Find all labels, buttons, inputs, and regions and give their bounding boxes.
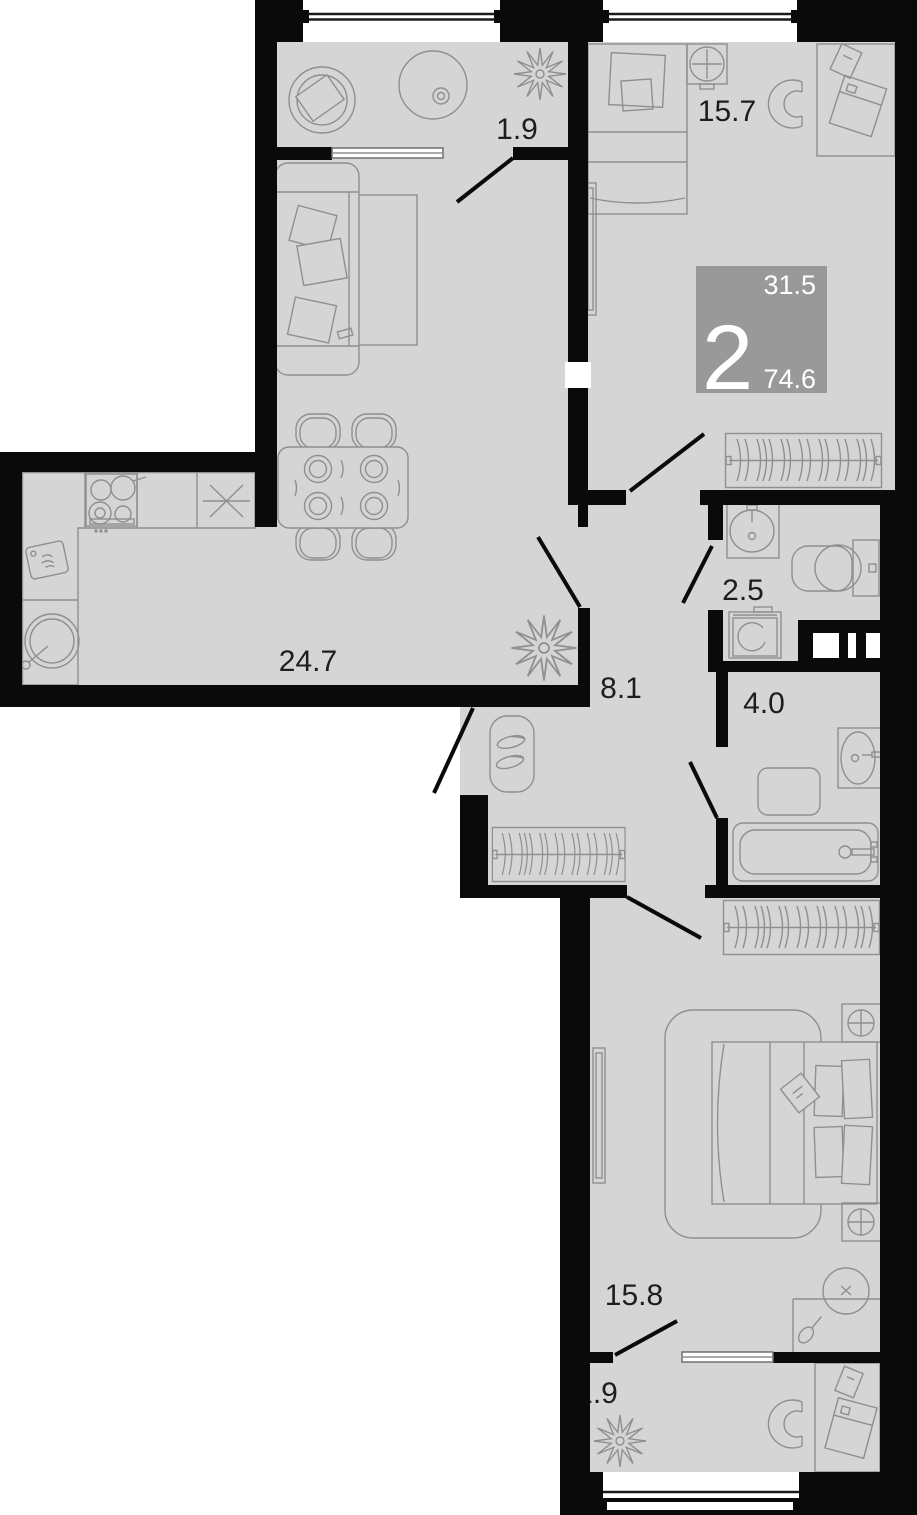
pillow-icon — [842, 1059, 873, 1118]
wall-niche — [565, 362, 591, 388]
area-label-bedroom-1: 15.7 — [698, 95, 756, 128]
floor-plan: 1.9 — [0, 0, 917, 1515]
pillow-icon — [842, 1125, 873, 1184]
window-living-balcony — [332, 148, 443, 158]
window-balcony-top — [303, 0, 500, 42]
sofa-pillow-icon — [288, 297, 337, 343]
window-balcony-bottom — [603, 1472, 799, 1510]
area-label-kitchen-living: 24.7 — [279, 645, 337, 678]
pillow-icon — [814, 1127, 844, 1178]
area-label-bathroom: 4.0 — [743, 687, 785, 720]
window-bedroom2-balcony — [682, 1352, 773, 1362]
badge-total-area: 74.6 — [763, 364, 816, 394]
info-badge: 31.5 2 74.6 — [696, 266, 827, 409]
badge-living-area: 31.5 — [763, 270, 816, 300]
area-label-wc: 2.5 — [722, 574, 764, 607]
area-label-balcony-top: 1.9 — [496, 113, 538, 146]
single-bed-icon — [588, 44, 687, 214]
pillow-icon — [814, 1066, 844, 1117]
area-label-hallway: 8.1 — [600, 672, 642, 705]
double-bed-icon — [712, 1042, 877, 1204]
window-bedroom-1 — [603, 0, 797, 42]
sofa-pillow-icon — [297, 238, 347, 285]
dining-table-icon — [278, 447, 408, 528]
area-label-bedroom-2: 15.8 — [605, 1279, 663, 1312]
badge-room-count: 2 — [702, 307, 753, 409]
